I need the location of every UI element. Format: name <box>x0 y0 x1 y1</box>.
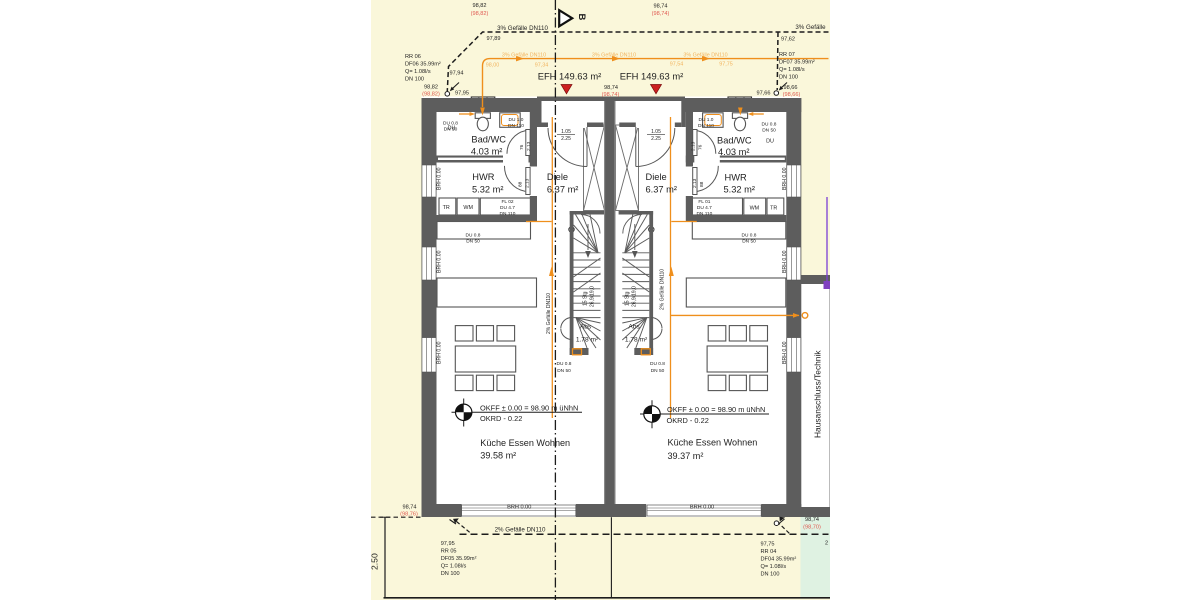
svg-text:OKFF ± 0.00 = 98.90 m üNhN: OKFF ± 0.00 = 98.90 m üNhN <box>480 403 578 412</box>
svg-text:Bad/WC: Bad/WC <box>471 135 506 145</box>
svg-text:98,74: 98,74 <box>654 4 668 10</box>
svg-text:DU: DU <box>448 126 456 132</box>
svg-text:97,94: 97,94 <box>450 71 464 77</box>
svg-text:RR 05: RR 05 <box>441 549 457 555</box>
svg-text:76: 76 <box>519 144 525 150</box>
svg-text:DF06 35.99m²: DF06 35.99m² <box>405 62 441 68</box>
svg-text:98,66: 98,66 <box>784 85 798 91</box>
svg-text:DU 0.8: DU 0.8 <box>557 361 572 367</box>
svg-text:2.13: 2.13 <box>692 178 698 188</box>
svg-text:BRH 0.00: BRH 0.00 <box>782 250 788 273</box>
svg-text:DU 0.8: DU 0.8 <box>650 361 665 367</box>
svg-text:DN 110: DN 110 <box>508 123 524 129</box>
svg-text:Küche Essen Wohnen: Küche Essen Wohnen <box>668 438 758 448</box>
svg-text:Abs: Abs <box>628 324 640 331</box>
svg-text:DN 100: DN 100 <box>405 77 424 83</box>
svg-text:97,75: 97,75 <box>719 62 733 68</box>
svg-text:1.05: 1.05 <box>651 129 661 135</box>
svg-text:97,75: 97,75 <box>761 542 775 548</box>
svg-text:OKRD - 0.22: OKRD - 0.22 <box>480 414 522 423</box>
svg-text:98,74: 98,74 <box>604 85 618 91</box>
svg-text:DN 110: DN 110 <box>698 123 714 129</box>
svg-text:1.05: 1.05 <box>561 129 571 135</box>
svg-text:DN 50: DN 50 <box>557 368 571 374</box>
svg-text:OKFF ± 0.00 = 98.90 m üNhN: OKFF ± 0.00 = 98.90 m üNhN <box>667 405 765 414</box>
svg-text:3% Gefälle DN110: 3% Gefälle DN110 <box>683 53 727 59</box>
svg-text:Hausanschluss/Technik: Hausanschluss/Technik <box>813 350 823 438</box>
svg-text:97,89: 97,89 <box>487 36 501 42</box>
svg-text:98,82: 98,82 <box>424 85 438 91</box>
svg-text:WM: WM <box>463 205 473 211</box>
svg-text:WM: WM <box>750 206 760 212</box>
svg-text:3% Gefälle DN110: 3% Gefälle DN110 <box>497 25 548 32</box>
svg-text:(98,70): (98,70) <box>803 524 821 530</box>
svg-text:RR 04: RR 04 <box>761 549 777 555</box>
svg-text:(98,76): (98,76) <box>400 511 418 517</box>
svg-text:97,54: 97,54 <box>670 62 684 68</box>
svg-text:1.78 m²: 1.78 m² <box>625 337 648 344</box>
svg-text:2.25: 2.25 <box>561 136 571 142</box>
svg-text:Küche Essen Wohnen: Küche Essen Wohnen <box>480 438 570 448</box>
svg-text:TR: TR <box>443 205 450 211</box>
svg-text:BRH 0.00: BRH 0.00 <box>437 167 443 190</box>
svg-text:26,9/19,0: 26,9/19,0 <box>590 286 596 307</box>
svg-text:(98,82): (98,82) <box>471 11 489 17</box>
svg-text:2% Gefälle DN110: 2% Gefälle DN110 <box>660 269 666 310</box>
svg-text:BRH 0.00: BRH 0.00 <box>782 341 788 364</box>
svg-text:6.37 m²: 6.37 m² <box>646 184 678 194</box>
svg-text:RR 07: RR 07 <box>779 52 795 58</box>
svg-text:26,9/19,0: 26,9/19,0 <box>632 286 638 307</box>
svg-text:39.37 m²: 39.37 m² <box>668 451 704 461</box>
svg-text:97,95: 97,95 <box>441 541 455 547</box>
svg-text:DN 100: DN 100 <box>779 75 798 81</box>
svg-text:15 Stg: 15 Stg <box>625 291 631 306</box>
svg-text:DF07 35.99m²: DF07 35.99m² <box>779 60 815 66</box>
svg-text:3% Gefälle DN110: 3% Gefälle DN110 <box>502 53 546 59</box>
svg-text:2.25: 2.25 <box>651 136 661 142</box>
svg-text:2.50: 2.50 <box>370 553 380 570</box>
svg-text:OKRD - 0.22: OKRD - 0.22 <box>667 416 709 425</box>
svg-text:DU 0.8: DU 0.8 <box>742 233 757 239</box>
svg-text:Diele: Diele <box>547 172 568 182</box>
svg-text:EFH 149.63 m²: EFH 149.63 m² <box>620 71 684 82</box>
svg-text:DN 100: DN 100 <box>441 571 460 577</box>
svg-text:6.37 m²: 6.37 m² <box>547 184 579 194</box>
svg-text:97,66: 97,66 <box>757 91 771 97</box>
svg-text:DU 1.0: DU 1.0 <box>699 117 714 123</box>
svg-text:DN 110: DN 110 <box>500 211 516 217</box>
svg-text:97,34: 97,34 <box>535 63 549 69</box>
svg-text:98,00: 98,00 <box>486 63 500 69</box>
svg-text:BRH 0.00: BRH 0.00 <box>690 504 714 510</box>
svg-text:4.03 m²: 4.03 m² <box>471 147 503 157</box>
svg-text:2% Gefälle DN110: 2% Gefälle DN110 <box>546 293 552 334</box>
svg-text:88: 88 <box>518 181 524 187</box>
svg-text:BRH 0.00: BRH 0.00 <box>437 341 443 364</box>
svg-text:Q= 1.08l/s: Q= 1.08l/s <box>779 67 805 73</box>
svg-text:DU: DU <box>766 139 774 145</box>
svg-text:3% Gefälle: 3% Gefälle <box>795 24 826 31</box>
svg-text:DN 110: DN 110 <box>696 211 712 217</box>
svg-text:2.13: 2.13 <box>691 141 697 151</box>
svg-text:15 Stg: 15 Stg <box>583 291 589 306</box>
svg-text:DN 100: DN 100 <box>761 572 780 578</box>
svg-text:(98,82): (98,82) <box>422 92 440 98</box>
svg-text:BRH 0.00: BRH 0.00 <box>437 250 443 273</box>
svg-text:76: 76 <box>698 144 704 150</box>
svg-text:Diele: Diele <box>646 172 667 182</box>
svg-text:DU 0.8: DU 0.8 <box>762 122 777 128</box>
svg-text:1.78 m²: 1.78 m² <box>576 337 599 344</box>
svg-text:3% Gefälle DN110: 3% Gefälle DN110 <box>592 53 636 59</box>
svg-text:(98,66): (98,66) <box>783 92 801 98</box>
svg-text:(98,74): (98,74) <box>652 11 670 17</box>
svg-text:97,62: 97,62 <box>781 37 795 43</box>
svg-text:DU 4.7: DU 4.7 <box>500 205 515 211</box>
svg-text:DN 50: DN 50 <box>651 368 665 374</box>
svg-text:TR: TR <box>770 206 777 212</box>
svg-text:Q= 1.08l/s: Q= 1.08l/s <box>761 564 787 570</box>
svg-text:98,74: 98,74 <box>403 505 417 511</box>
svg-text:BRH 0.00: BRH 0.00 <box>507 504 531 510</box>
svg-text:4.03 m²: 4.03 m² <box>718 147 750 157</box>
svg-text:HWR: HWR <box>725 172 747 182</box>
svg-text:Abs: Abs <box>580 324 592 331</box>
svg-text:88: 88 <box>699 181 705 187</box>
svg-text:(98,74): (98,74) <box>602 92 620 98</box>
svg-text:DF05 35.99m²: DF05 35.99m² <box>441 556 477 562</box>
svg-text:DN 50: DN 50 <box>466 239 480 245</box>
svg-text:FL 01: FL 01 <box>698 199 710 205</box>
svg-text:DN 50: DN 50 <box>742 239 756 245</box>
svg-text:Bad/WC: Bad/WC <box>717 136 752 146</box>
svg-text:5.32 m²: 5.32 m² <box>724 185 756 195</box>
svg-text:Q= 1.08l/s: Q= 1.08l/s <box>405 69 431 75</box>
svg-text:BRH 0.00: BRH 0.00 <box>782 167 788 190</box>
svg-text:FL 02: FL 02 <box>501 199 513 205</box>
svg-text:2% Gefälle DN110: 2% Gefälle DN110 <box>495 527 546 534</box>
svg-text:DU 1.0: DU 1.0 <box>509 117 524 123</box>
svg-text:39.58 m²: 39.58 m² <box>480 451 516 461</box>
svg-text:98,74: 98,74 <box>805 517 819 523</box>
svg-text:RR 06: RR 06 <box>405 54 421 60</box>
svg-text:5.32 m²: 5.32 m² <box>472 184 504 194</box>
svg-text:2.13: 2.13 <box>526 141 532 151</box>
svg-text:DF04 35.99m²: DF04 35.99m² <box>761 557 797 563</box>
svg-text:HWR: HWR <box>472 172 494 182</box>
svg-text:2.13: 2.13 <box>525 178 531 188</box>
svg-text:97,95: 97,95 <box>455 91 469 97</box>
svg-text:DU 0.8: DU 0.8 <box>466 233 481 239</box>
svg-text:EFH 149.63 m²: EFH 149.63 m² <box>538 71 602 82</box>
svg-text:98,82: 98,82 <box>473 3 487 9</box>
svg-text:DN 50: DN 50 <box>762 128 776 134</box>
svg-text:DU 4.7: DU 4.7 <box>697 205 712 211</box>
svg-text:2: 2 <box>825 541 828 547</box>
svg-text:B: B <box>576 14 587 21</box>
svg-text:Q= 1.08l/s: Q= 1.08l/s <box>441 564 467 570</box>
